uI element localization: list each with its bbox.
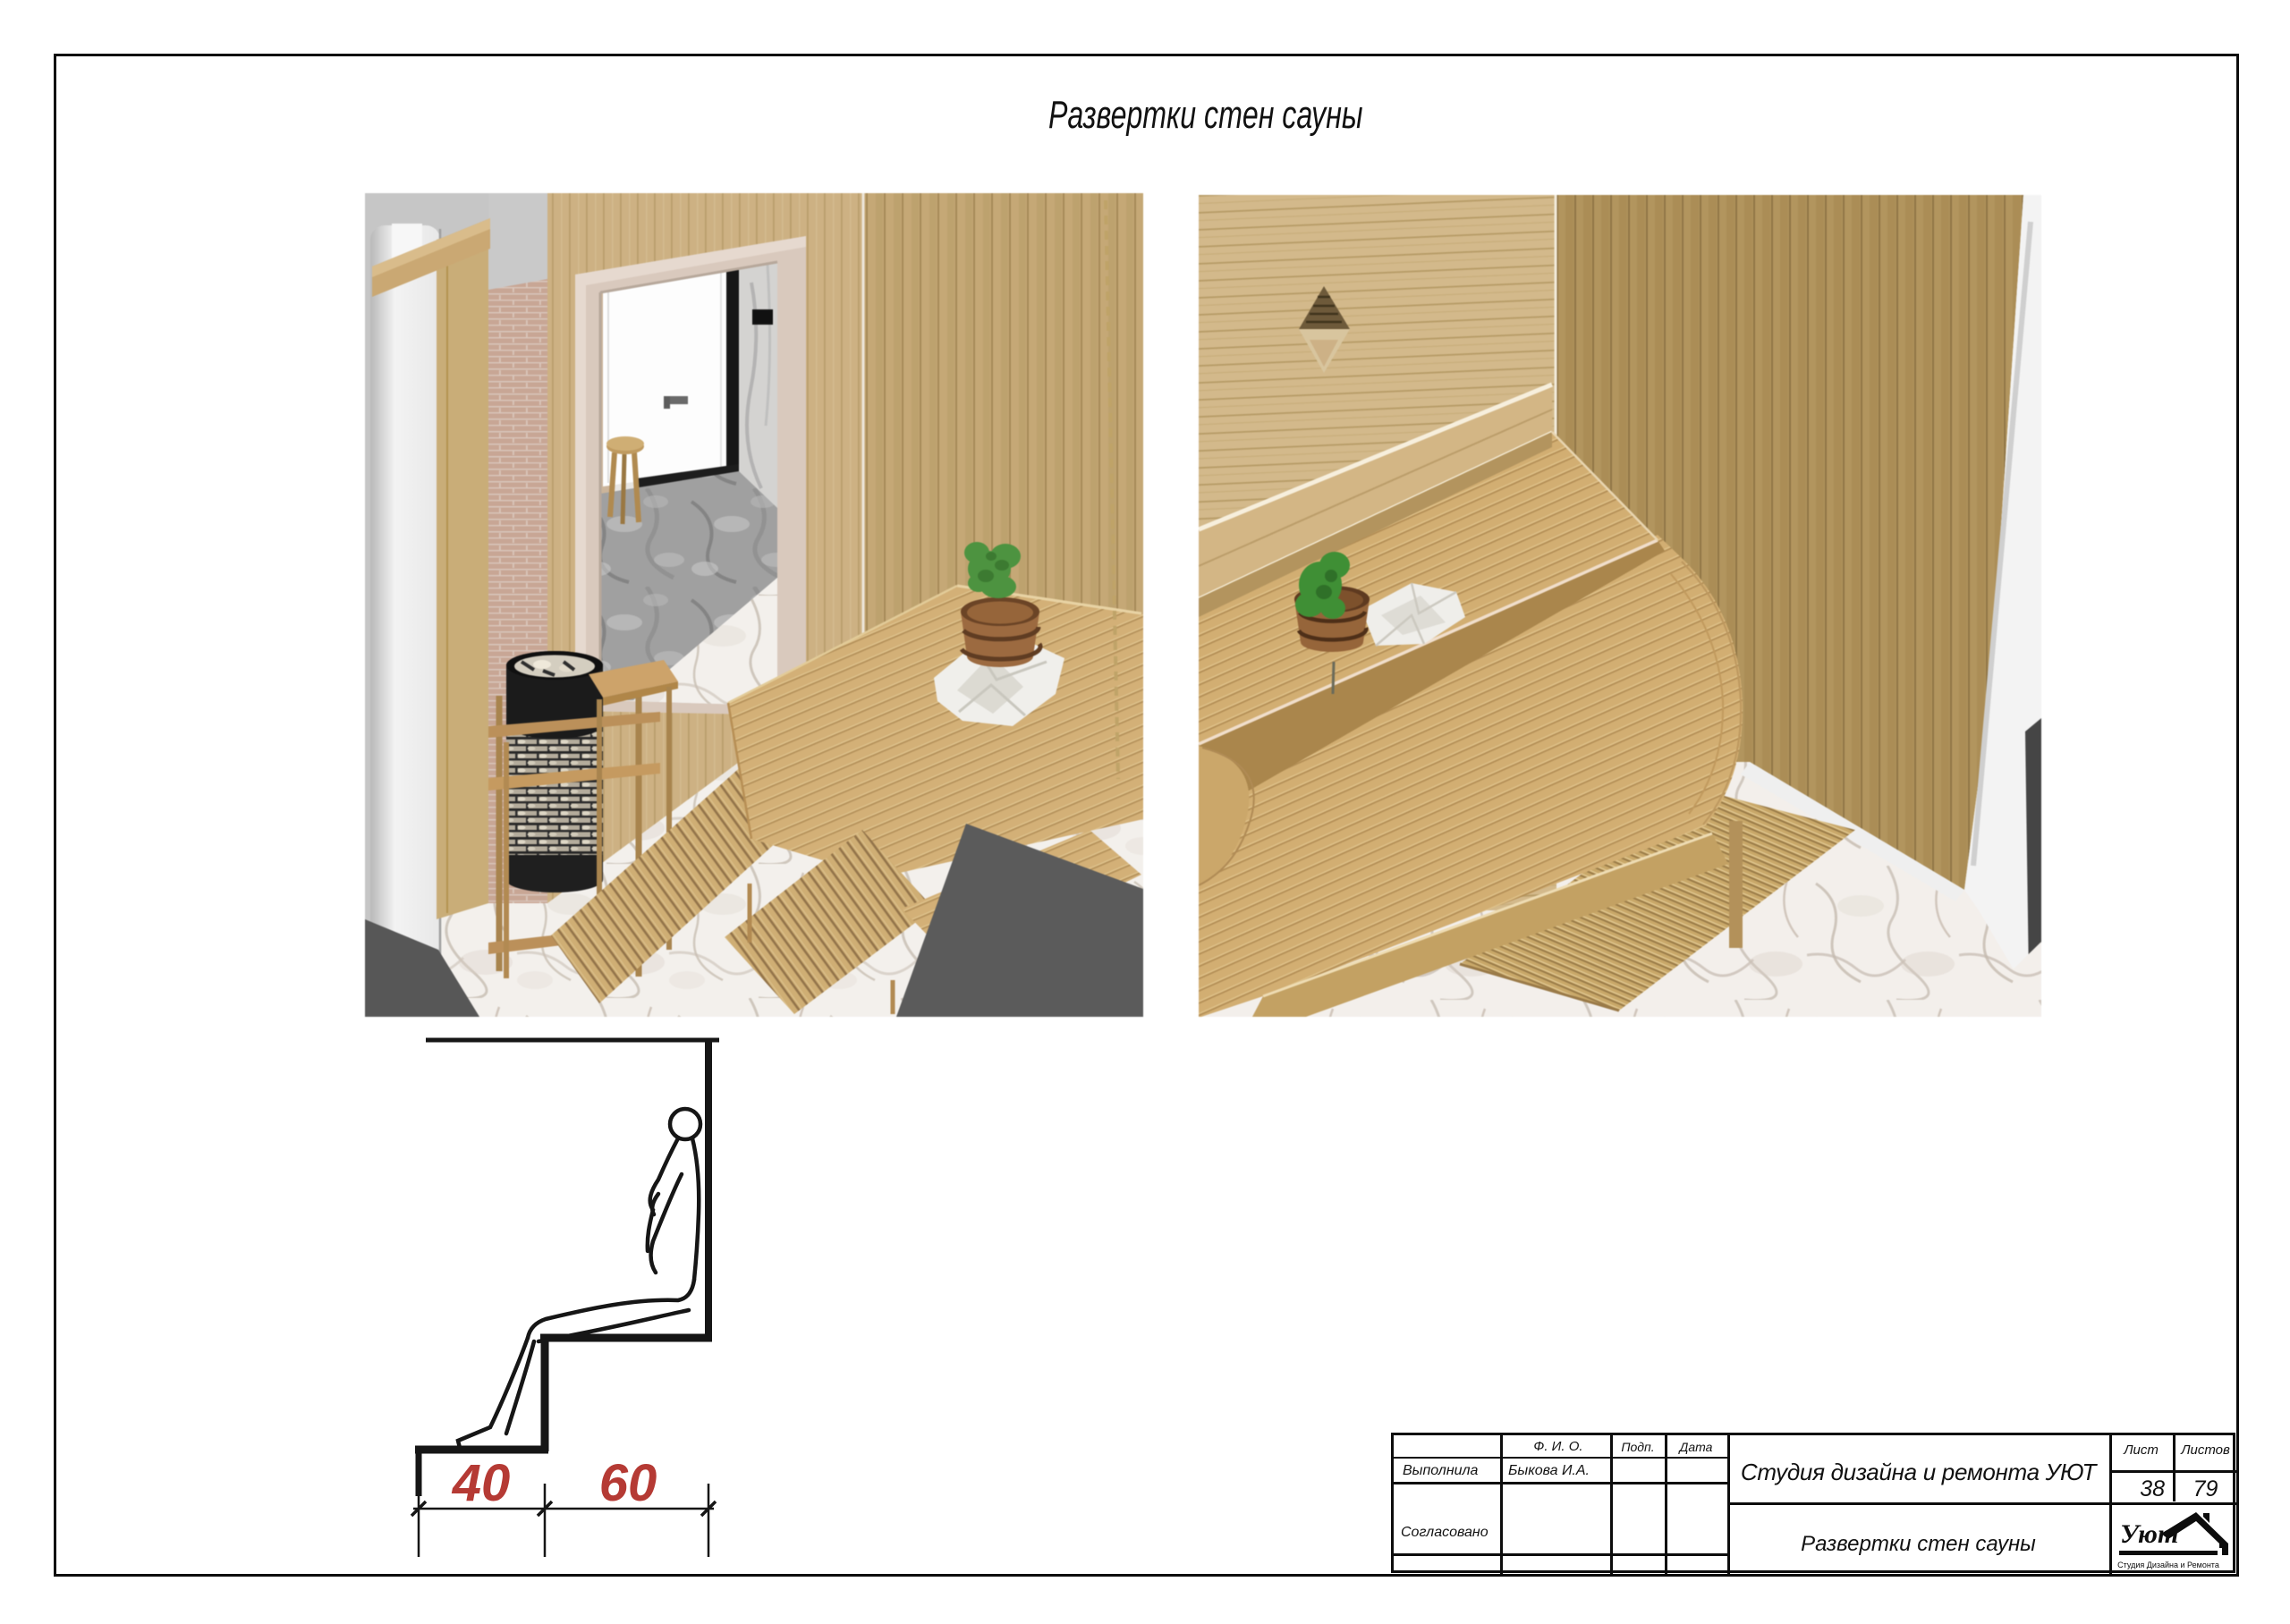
svg-text:60: 60 [599, 1454, 657, 1512]
svg-text:40: 40 [452, 1454, 511, 1512]
svg-text:Студия Дизайна и Ремонта: Студия Дизайна и Ремонта [2117, 1561, 2219, 1569]
